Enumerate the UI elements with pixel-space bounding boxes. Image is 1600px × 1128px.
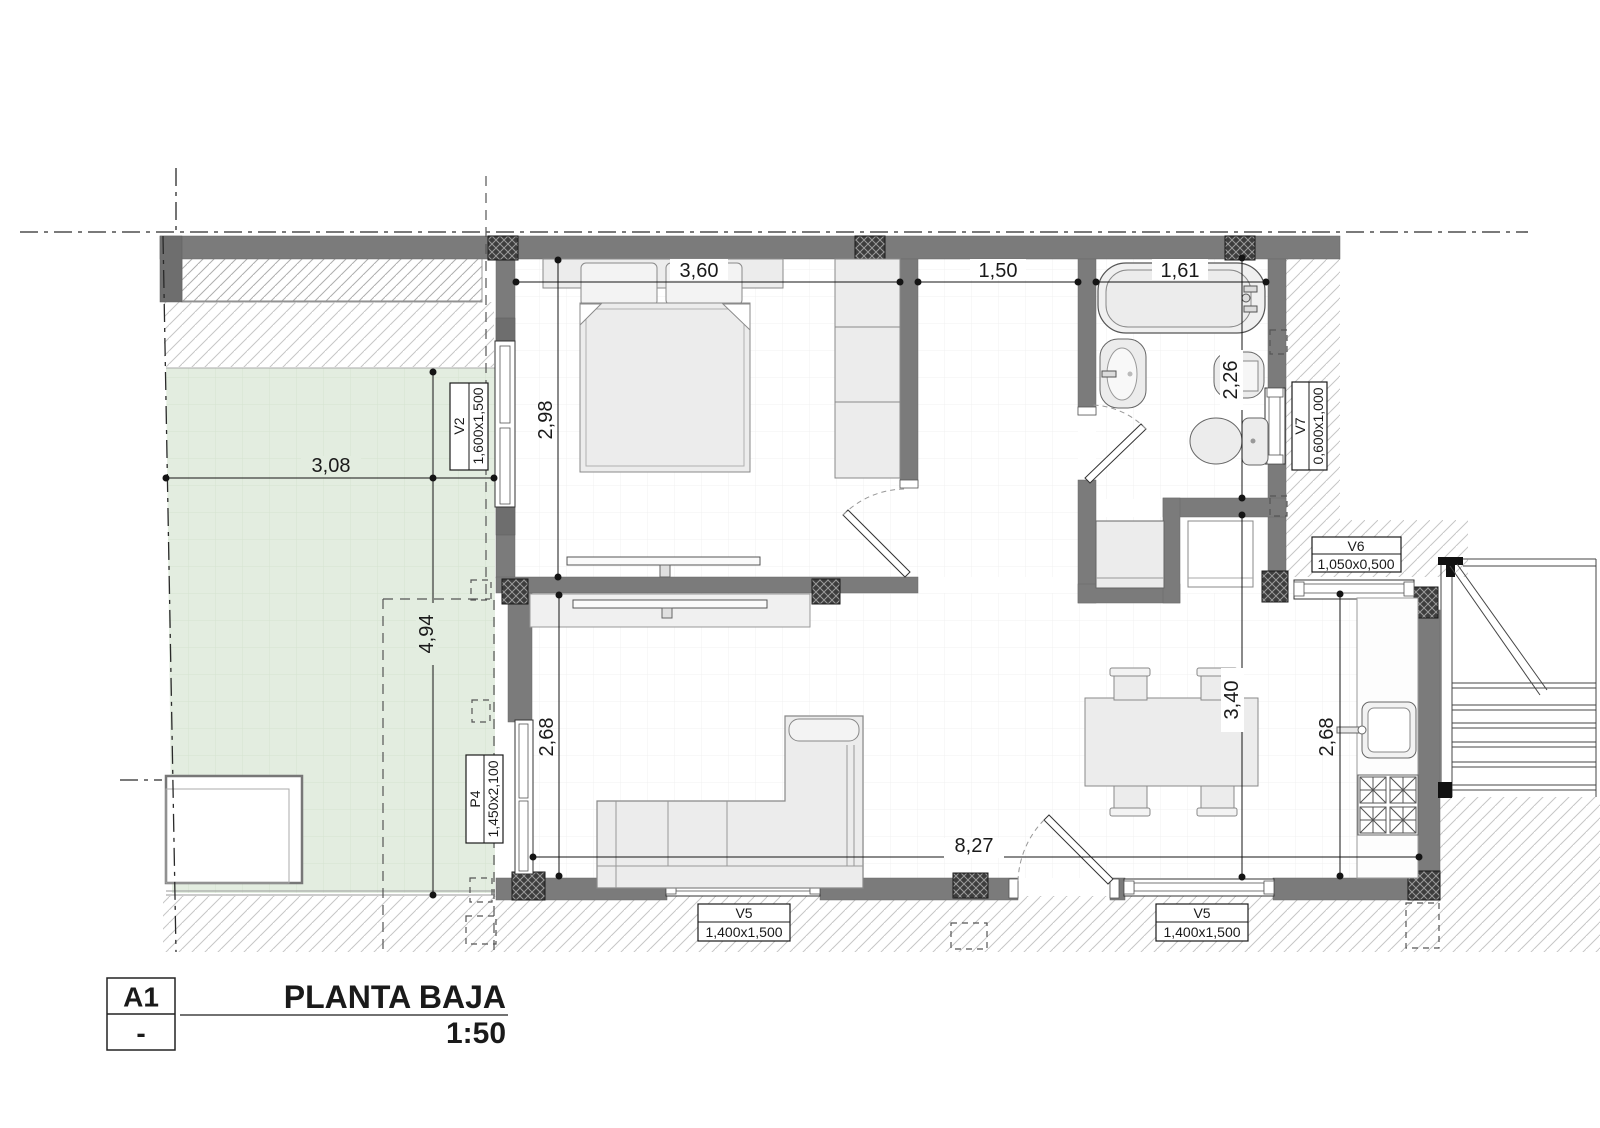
toilet xyxy=(1190,418,1268,465)
terrace-area xyxy=(166,368,495,895)
dim-text: 2,98 xyxy=(535,401,557,440)
pillar xyxy=(855,236,885,260)
opening-code: P4 xyxy=(467,790,483,807)
pillar xyxy=(502,579,528,604)
label-v5a: V5 1,400x1,500 xyxy=(698,904,790,941)
opening-size: 0,600x1,000 xyxy=(1310,387,1326,464)
pillow xyxy=(581,263,657,306)
sheet-code: A1 xyxy=(123,982,159,1013)
dining-chair xyxy=(1197,786,1237,816)
wall-bedroom-right xyxy=(900,259,918,487)
hatch-bottom-right xyxy=(1440,797,1600,952)
dim-text: 2,68 xyxy=(536,718,558,757)
wall-kitchen-right xyxy=(1418,610,1440,878)
floor-plan-drawing: 3,60 1,50 1,61 2,98 2,26 xyxy=(0,0,1600,1128)
stair-marker xyxy=(1438,782,1452,798)
drawing-title: PLANTA BAJA xyxy=(284,979,506,1015)
dining-chair xyxy=(1110,786,1150,816)
title-block: A1 - PLANTA BAJA 1:50 xyxy=(107,978,508,1050)
wall-reveal-a xyxy=(496,318,515,343)
opening-code: V2 xyxy=(451,417,467,434)
wall-living-left xyxy=(508,593,532,722)
wall-below-bath xyxy=(1163,498,1286,517)
dim-text: 3,08 xyxy=(312,455,351,477)
dim-text: 2,68 xyxy=(1316,718,1338,757)
pillar xyxy=(512,872,545,900)
pillar xyxy=(953,873,988,898)
wall-niche-right xyxy=(1163,498,1180,603)
dim-text: 3,40 xyxy=(1221,681,1243,720)
stairs xyxy=(1438,557,1596,798)
sheet-revision: - xyxy=(136,1018,145,1049)
pillar xyxy=(488,236,518,260)
opening-size: 1,450x2,100 xyxy=(485,760,501,837)
wall-top xyxy=(160,236,1340,259)
dim-text: 3,60 xyxy=(680,260,719,282)
label-v2: V2 1,600x1,500 xyxy=(450,383,488,470)
window-v5b xyxy=(1124,879,1274,896)
washing-machine xyxy=(1096,521,1164,588)
opening-code: V7 xyxy=(1292,417,1308,434)
label-p4: P4 1,450x2,100 xyxy=(466,755,503,843)
label-v7: V7 0,600x1,000 xyxy=(1292,382,1327,470)
hatch-band-lower xyxy=(164,302,494,367)
stair-steps xyxy=(1452,683,1596,790)
opening-size: 1,600x1,500 xyxy=(470,387,486,464)
dim-text: 2,26 xyxy=(1220,361,1242,400)
label-v5b: V5 1,400x1,500 xyxy=(1156,904,1248,941)
opening-code: V5 xyxy=(735,905,752,921)
dim-text: 1,61 xyxy=(1161,260,1200,282)
dim-text: 4,94 xyxy=(416,615,438,654)
washbasin xyxy=(1100,339,1146,408)
pillar xyxy=(1262,571,1288,602)
wardrobe xyxy=(835,259,900,478)
opening-size: 1,400x1,500 xyxy=(1163,924,1240,940)
label-v6: V6 1,050x0,500 xyxy=(1312,537,1401,572)
opening-code: V5 xyxy=(1193,905,1210,921)
pillar xyxy=(812,579,840,604)
dim-text: 8,27 xyxy=(955,835,994,857)
stove xyxy=(1358,775,1418,835)
opening-size: 1,400x1,500 xyxy=(705,924,782,940)
opening-size: 1,050x0,500 xyxy=(1317,556,1394,572)
door-p4 xyxy=(515,720,533,874)
wall-reveal-b xyxy=(496,505,515,535)
window-v6 xyxy=(1294,580,1414,599)
hatch-band-upper xyxy=(166,252,482,302)
window-v2 xyxy=(495,341,515,507)
drawing-scale: 1:50 xyxy=(446,1017,506,1050)
opening-code: V6 xyxy=(1347,538,1364,554)
appliance xyxy=(1188,521,1253,587)
floor-plan-sheet: 3,60 1,50 1,61 2,98 2,26 xyxy=(0,0,1600,1128)
terrace-planter xyxy=(166,776,302,883)
dining-chair xyxy=(1110,668,1150,700)
dim-text: 1,50 xyxy=(979,260,1018,282)
